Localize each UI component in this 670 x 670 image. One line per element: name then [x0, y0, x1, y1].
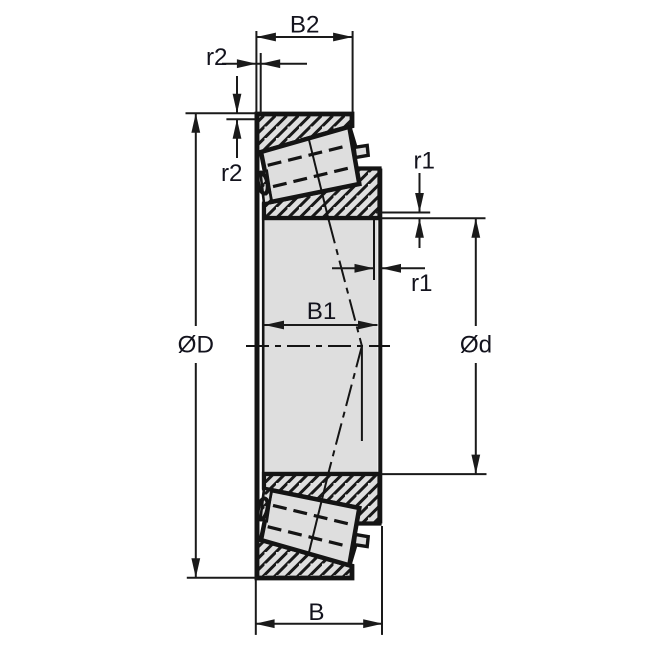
- svg-text:Ød: Ød: [460, 332, 492, 359]
- svg-text:r2: r2: [221, 160, 243, 187]
- svg-text:B: B: [308, 599, 324, 626]
- svg-text:B2: B2: [290, 12, 320, 39]
- svg-text:B1: B1: [307, 298, 337, 325]
- svg-text:r1: r1: [411, 270, 433, 297]
- svg-text:r1: r1: [414, 148, 436, 175]
- svg-text:ØD: ØD: [178, 332, 214, 359]
- svg-text:r2: r2: [206, 44, 228, 71]
